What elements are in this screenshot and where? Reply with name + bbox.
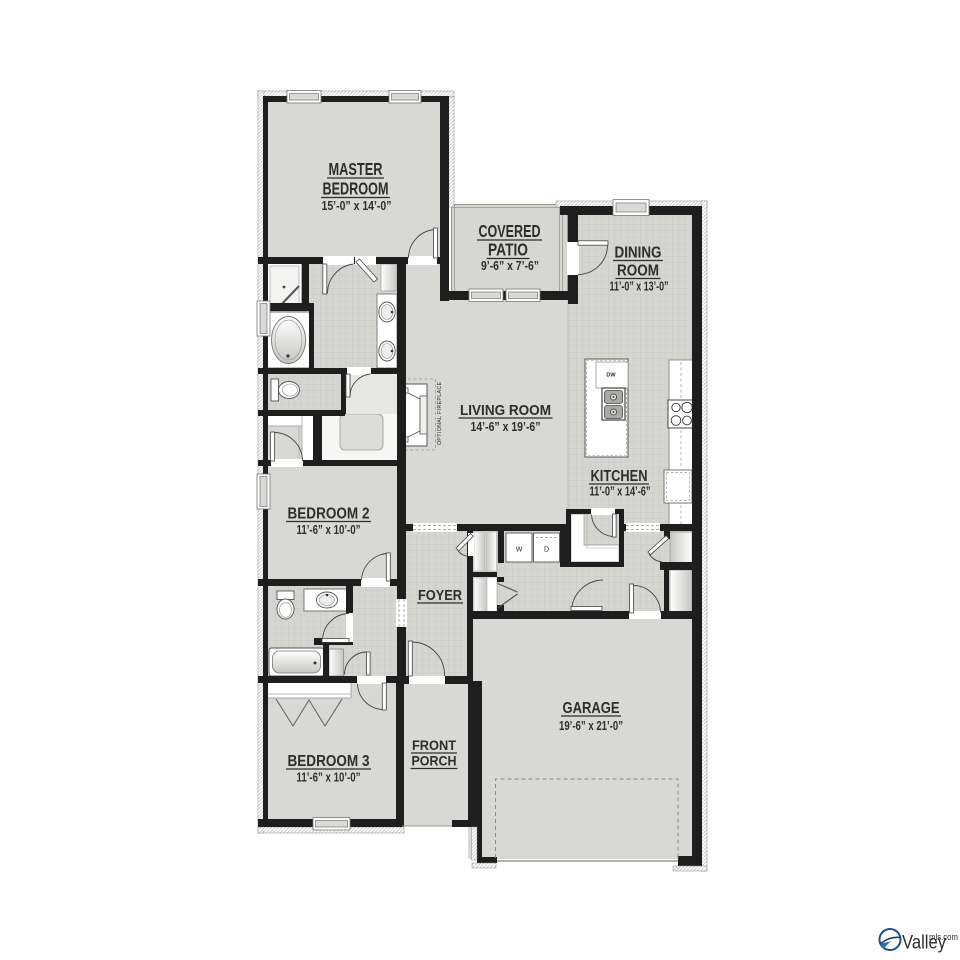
- svg-text:11’-6” x 10’-0”: 11’-6” x 10’-0”: [297, 770, 361, 785]
- svg-text:11’-0” x 13’-0”: 11’-0” x 13’-0”: [610, 279, 669, 294]
- svg-text:BEDROOM 3: BEDROOM 3: [288, 753, 370, 770]
- svg-text:COVERED: COVERED: [479, 221, 541, 241]
- svg-text:LIVING ROOM: LIVING ROOM: [460, 402, 551, 419]
- svg-text:BEDROOM: BEDROOM: [323, 179, 389, 199]
- svg-text:19’-6” x 21’-0”: 19’-6” x 21’-0”: [559, 718, 623, 733]
- svg-text:11’-6” x 10’-0”: 11’-6” x 10’-0”: [297, 522, 361, 537]
- svg-text:PORCH: PORCH: [412, 753, 457, 769]
- svg-text:DW: DW: [606, 373, 616, 379]
- svg-text:DINING: DINING: [615, 245, 662, 262]
- svg-text:OPTIONAL FIREPLACE: OPTIONAL FIREPLACE: [437, 381, 443, 445]
- svg-text:PATIO: PATIO: [488, 240, 528, 260]
- svg-text:MASTER: MASTER: [329, 159, 383, 179]
- svg-text:9’-6” x 7’-6”: 9’-6” x 7’-6”: [481, 258, 539, 273]
- svg-text:KITCHEN: KITCHEN: [591, 468, 648, 485]
- svg-text:11’-0” x 14’-6”: 11’-0” x 14’-6”: [590, 484, 651, 499]
- svg-text:W: W: [516, 547, 523, 554]
- svg-text:BEDROOM 2: BEDROOM 2: [288, 506, 370, 523]
- svg-text:D: D: [544, 547, 549, 554]
- svg-text:15’-0” x 14’-0”: 15’-0” x 14’-0”: [322, 198, 392, 213]
- svg-text:GARAGE: GARAGE: [563, 700, 620, 717]
- svg-text:14’-6” x 19’-6”: 14’-6” x 19’-6”: [471, 419, 541, 434]
- svg-text:FRONT: FRONT: [412, 737, 456, 753]
- svg-text:ROOM: ROOM: [617, 263, 659, 280]
- svg-text:FOYER: FOYER: [418, 588, 462, 604]
- svg-text:mls.com: mls.com: [929, 932, 958, 942]
